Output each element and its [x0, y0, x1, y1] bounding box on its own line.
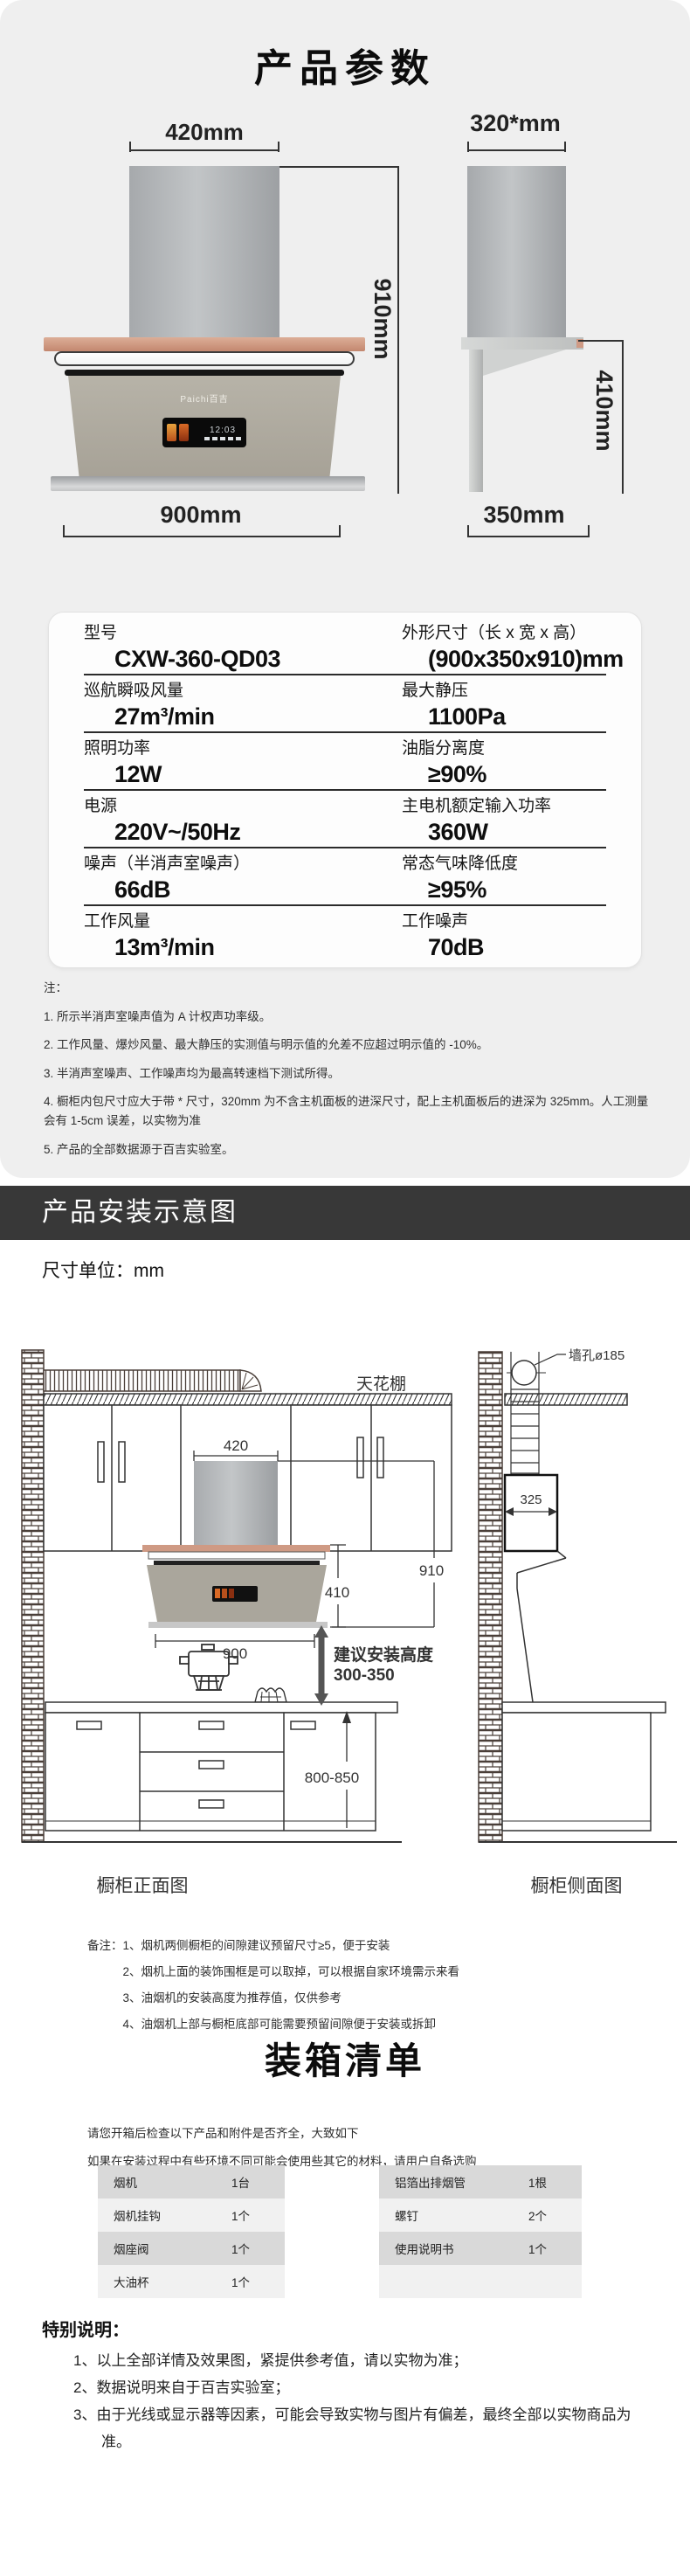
note-item: 5. 产品的全部数据源于百吉实验室。	[44, 1140, 655, 1160]
spec-label: 外形尺寸（长 x 宽 x 高）	[402, 620, 641, 643]
packing-row: 螺钉2个	[379, 2199, 582, 2232]
hood-vent-slot	[65, 370, 344, 376]
spec-value: CXW-360-QD03	[84, 646, 345, 673]
section-title-parameters: 产品参数	[0, 37, 690, 93]
packing-row: 烟机挂钩1个	[98, 2199, 285, 2232]
spec-value: 70dB	[402, 934, 641, 961]
front-bottom-width-label: 900mm	[105, 502, 297, 529]
spec-value: 1100Pa	[402, 703, 641, 731]
item-name: 螺钉	[379, 2206, 418, 2224]
parameters-panel: 产品参数 420mm 910mm Paichi百吉 12:03 900mm	[0, 0, 690, 1178]
unit-label: 尺寸单位：mm	[42, 1257, 164, 1283]
display-time: 12:03	[210, 426, 236, 435]
product-detail-page: 产品参数 420mm 910mm Paichi百吉 12:03 900mm	[0, 0, 690, 2576]
countertop-side	[502, 1702, 666, 1713]
special-notes-heading: 特别说明：	[42, 2316, 129, 2341]
lower-cabinet-side	[502, 1713, 651, 1831]
ceiling-front	[44, 1394, 452, 1405]
dim-hood-width: 900	[223, 1645, 247, 1662]
packing-list-title: 装箱清单	[0, 2032, 690, 2085]
remarks-heading: 备注：	[87, 1933, 123, 2038]
item-qty: 1个	[231, 2206, 285, 2224]
packing-row: 铝箔出排烟管1根	[379, 2165, 582, 2199]
spec-value: 66dB	[84, 876, 345, 904]
spec-divider	[84, 904, 606, 906]
front-chimney	[129, 166, 279, 337]
display-food-thumb	[191, 424, 201, 441]
duct-horizontal	[44, 1370, 240, 1391]
special-note-item: 3、由于光线或显示器等因素，可能会导致实物与图片有偏差，最终全部以实物商品为准。	[73, 2401, 659, 2455]
side-view-caption: 橱柜侧面图	[531, 1876, 623, 1896]
spec-value: 13m³/min	[84, 934, 345, 961]
note-item: 2. 工作风量、爆炒风量、最大静压的实测值与明示值的允差不应超过明示值的 -10…	[44, 1035, 655, 1055]
packing-intro-line: 请您开箱后检查以下产品和附件是否齐全，大致如下	[87, 2120, 629, 2148]
front-top-width-label: 420mm	[129, 119, 279, 146]
item-name: 烟机	[98, 2173, 137, 2191]
diagram-hood-photo	[142, 1545, 330, 1628]
packing-row: 大油杯1个	[98, 2265, 285, 2298]
spec-row: 型号CXW-360-QD03 外形尺寸（长 x 宽 x 高）(900x350x9…	[49, 620, 641, 673]
front-view-caption: 橱柜正面图	[97, 1876, 189, 1896]
spec-label: 照明功率	[84, 735, 345, 758]
ceiling-side	[505, 1394, 627, 1405]
install-section-header: 产品安装示意图	[0, 1186, 690, 1240]
side-bottom-width-label: 350mm	[459, 502, 590, 529]
dim-side-depth: 325	[520, 1492, 542, 1507]
dim-hood-height: 910	[419, 1562, 444, 1579]
front-bottom-dim-line	[63, 536, 341, 537]
spec-label: 工作噪声	[402, 908, 641, 931]
notes-block: 注： 1. 所示半消声室噪声值为 A 计权声功率级。 2. 工作风量、爆炒风量、…	[44, 979, 655, 1168]
spec-value: 220V~/50Hz	[84, 819, 345, 846]
special-note-item: 2、数据说明来自于百吉实验室；	[73, 2374, 659, 2401]
item-qty: 1个	[528, 2240, 582, 2257]
spec-row: 照明功率12W 油脂分离度≥90%	[49, 735, 641, 788]
packing-row: 使用说明书1个	[379, 2232, 582, 2265]
note-item: 4. 橱柜内包尺寸应大于带 * 尺寸，320mm 为不含主机面板的进深尺寸，配上…	[44, 1092, 655, 1130]
item-name: 使用说明书	[379, 2240, 454, 2257]
spec-label: 主电机额定输入功率	[402, 793, 641, 816]
packing-table-left: 烟机1台 烟机挂钩1个 烟座阀1个 大油杯1个	[98, 2165, 285, 2298]
front-height-dim-line	[397, 167, 399, 494]
item-qty: 1台	[231, 2173, 285, 2191]
countertop-front	[45, 1702, 397, 1713]
spec-value: 360W	[402, 819, 641, 846]
remark-item: 3、油烟机的安装高度为推荐值，仅供参考	[123, 1985, 460, 2012]
front-height-label: 910mm	[369, 267, 396, 371]
notes-heading: 注：	[44, 979, 655, 998]
hood-light-bar	[54, 351, 355, 366]
side-chimney	[467, 166, 566, 337]
display-food-thumb	[167, 424, 176, 441]
spec-value: 27m³/min	[84, 703, 345, 731]
hood-base	[51, 476, 365, 491]
front-top-dim-line	[129, 149, 279, 151]
install-remarks: 备注： 1、烟机两侧橱柜的间隙建议预留尺寸≥5，便于安装 2、烟机上面的装饰围框…	[87, 1933, 459, 2038]
side-bottom-dim-line	[467, 536, 590, 537]
hood-control-display: 12:03	[162, 418, 246, 447]
item-name: 烟座阀	[98, 2240, 149, 2257]
spec-label: 电源	[84, 793, 345, 816]
side-top-width-label: 320*mm	[450, 110, 581, 137]
remark-item: 1、烟机两侧橱柜的间隙建议预留尺寸≥5，便于安装	[123, 1933, 460, 1959]
dim-chimney-width: 420	[224, 1437, 248, 1454]
spec-row: 电源220V~/50Hz 主电机额定输入功率360W	[49, 793, 641, 846]
side-height-dim-line	[622, 341, 624, 494]
spec-value: ≥95%	[402, 876, 641, 904]
hood-side-angled-face	[517, 1551, 566, 1702]
spec-divider	[84, 731, 606, 733]
side-angled-panel	[483, 350, 566, 376]
remark-item: 2、烟机上面的装饰围框是可以取掉，可以根据自家环境需示来看	[123, 1959, 460, 1985]
spec-value: 12W	[84, 761, 345, 788]
side-front-edge	[469, 350, 483, 492]
spec-divider	[84, 789, 606, 791]
diagram-chimney	[194, 1461, 278, 1545]
spec-label: 油脂分离度	[402, 735, 641, 758]
item-name: 大油杯	[98, 2273, 149, 2290]
spec-row: 巡航瞬吸风量27m³/min 最大静压1100Pa	[49, 677, 641, 731]
spec-value: ≥90%	[402, 761, 641, 788]
spec-row: 噪声（半消声室噪声）66dB 常态气味降低度≥95%	[49, 850, 641, 904]
item-qty: 1个	[231, 2273, 285, 2290]
dim-body-height: 410	[325, 1584, 349, 1601]
install-diagram: 420 910 410 900 建议安装高度 300-350 800-850 天…	[0, 1311, 690, 1905]
ceiling-label: 天花棚	[356, 1375, 406, 1394]
item-qty: 2个	[528, 2206, 582, 2224]
item-qty: 1个	[231, 2240, 285, 2257]
spec-label: 工作风量	[84, 908, 345, 931]
item-qty: 1根	[528, 2173, 582, 2191]
special-notes-list: 1、以上全部详情及效果图，紧提供参考值，请以实物为准； 2、数据说明来自于百吉实…	[73, 2347, 659, 2455]
install-height-hint-1: 建议安装高度	[334, 1645, 434, 1665]
side-height-label: 410mm	[591, 358, 618, 463]
spec-label: 型号	[84, 620, 345, 643]
dim-counter-height: 800-850	[305, 1769, 359, 1786]
spec-row: 工作风量13m³/min 工作噪声70dB	[49, 908, 641, 961]
spec-divider	[84, 674, 606, 675]
item-name: 烟机挂钩	[98, 2206, 161, 2224]
side-top-plate	[461, 337, 583, 350]
packing-row	[379, 2265, 582, 2298]
spec-label: 巡航瞬吸风量	[84, 677, 345, 701]
cabinet-side-view	[479, 1352, 677, 1842]
install-section-title: 产品安装示意图	[42, 1186, 690, 1240]
display-food-thumb	[179, 424, 189, 441]
side-top-dim-line	[467, 149, 566, 151]
hood-brand-logo: Paichi百吉	[68, 391, 341, 405]
install-height-hint-2: 300-350	[334, 1666, 395, 1685]
packing-row: 烟座阀1个	[98, 2232, 285, 2265]
wall-hole-label: 墙孔ø185	[569, 1348, 624, 1363]
spec-label: 常态气味降低度	[402, 850, 641, 874]
spec-value: (900x350x910)mm	[402, 646, 641, 673]
note-item: 3. 半消声室噪声、工作噪声均为最高转速档下测试所得。	[44, 1064, 655, 1084]
display-buttons	[204, 437, 241, 440]
packing-row: 烟机1台	[98, 2165, 285, 2199]
spec-label: 噪声（半消声室噪声）	[84, 850, 345, 874]
spec-table: 型号CXW-360-QD03 外形尺寸（长 x 宽 x 高）(900x350x9…	[48, 612, 642, 968]
spec-divider	[84, 847, 606, 848]
burner-right	[255, 1688, 286, 1702]
item-name: 铝箔出排烟管	[379, 2173, 466, 2191]
brick-wall-side	[479, 1352, 502, 1842]
hood-copper-trim	[44, 337, 365, 351]
note-item: 1. 所示半消声室噪声值为 A 计权声功率级。	[44, 1008, 655, 1027]
brick-wall-front	[22, 1350, 44, 1842]
packing-table-right: 铝箔出排烟管1根 螺钉2个 使用说明书1个	[379, 2165, 582, 2298]
special-note-item: 1、以上全部详情及效果图，紧提供参考值，请以实物为准；	[73, 2347, 659, 2374]
spec-label: 最大静压	[402, 677, 641, 701]
wall-hole-circle	[512, 1361, 536, 1385]
